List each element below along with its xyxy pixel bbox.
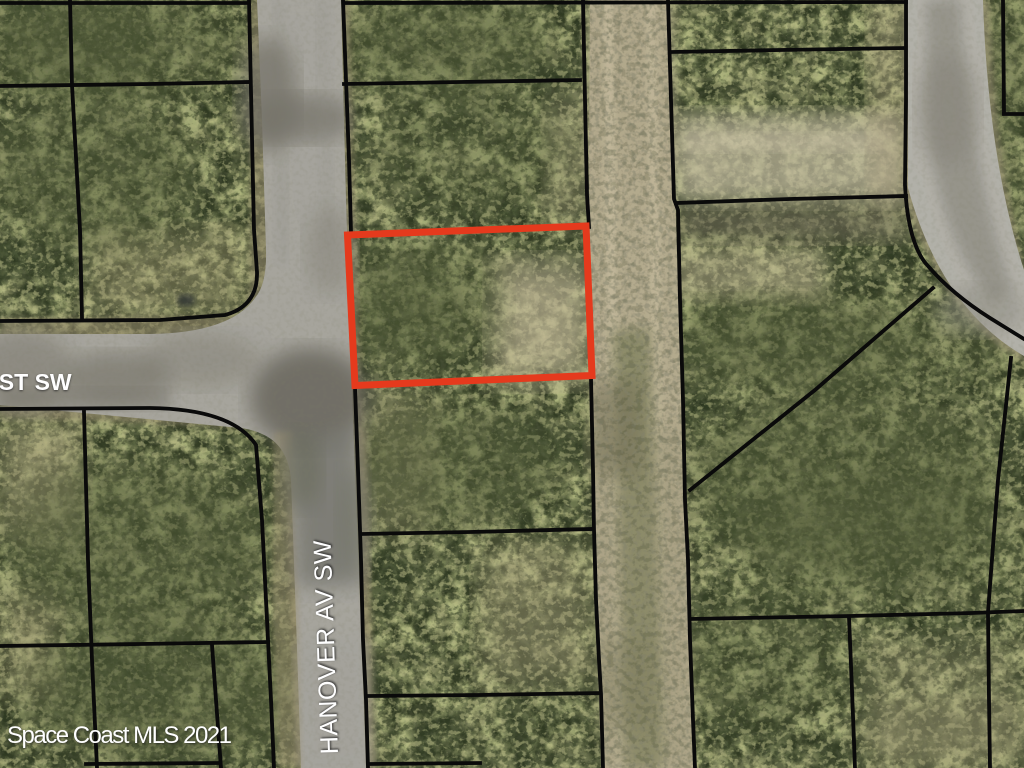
svg-text:Space Coast MLS 2021: Space Coast MLS 2021 <box>7 722 232 749</box>
svg-text:1ST SW: 1ST SW <box>0 369 72 395</box>
